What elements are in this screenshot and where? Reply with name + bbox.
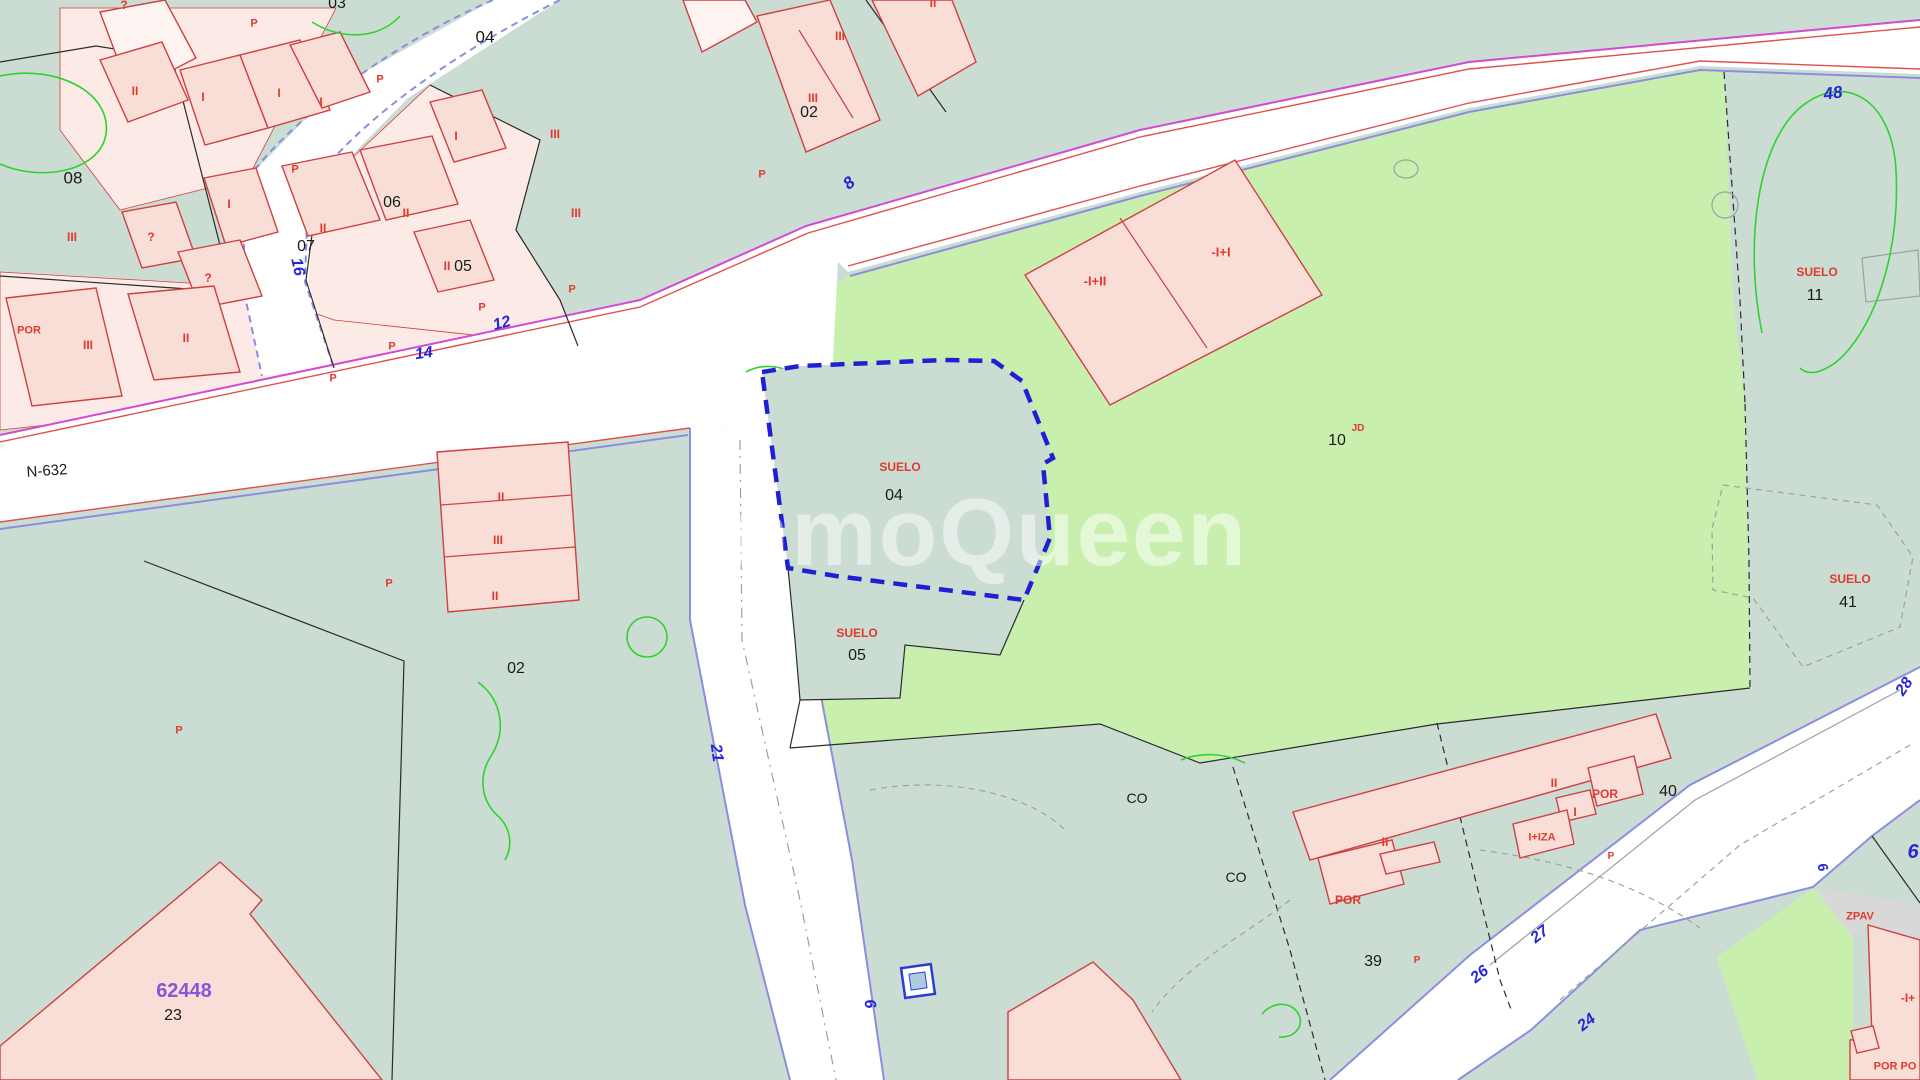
parcel-number-08: 08 <box>64 170 83 187</box>
street-number-6a: 6 <box>860 998 877 1010</box>
floors-i-5: I <box>227 198 230 210</box>
ground-mark-p-3: P <box>291 165 298 176</box>
floors-iii-2: III <box>83 339 93 351</box>
floors-iii-5: III <box>835 30 845 42</box>
floors-i-iza: I+IZA <box>1528 833 1555 844</box>
parcel-number-39: 39 <box>1364 954 1382 970</box>
floors-ii-8: II <box>492 590 499 602</box>
landuse-zpav: ZPAV <box>1846 912 1874 923</box>
ground-mark-p-9: P <box>385 579 392 590</box>
ground-mark-p-1: P <box>250 19 257 30</box>
ground-mark-p-6: P <box>388 342 395 353</box>
parcel-number-03: 03 <box>328 0 346 12</box>
ground-mark-p-7: P <box>568 285 575 296</box>
floors-ii-3: II <box>320 222 327 234</box>
floors-iii-7: III <box>493 534 503 546</box>
floors-ii-7: II <box>498 491 505 503</box>
floors-i-1: I <box>201 91 204 103</box>
floors-por-4: POR PO <box>1874 1062 1917 1073</box>
ground-mark-p-2: P <box>376 75 383 86</box>
map-labels-layer: 0304080607050202SUELO04SUELO0510JDSUELO1… <box>0 0 1920 1080</box>
suelo-11-label: SUELO <box>1796 266 1837 278</box>
street-number-6c: 6 <box>1907 842 1918 862</box>
floors-ii-9: II <box>1551 777 1558 789</box>
floors-neg-i: -I+ <box>1901 992 1915 1004</box>
parcel-number-04-suelo: 04 <box>885 488 903 504</box>
floors-i-2: I <box>277 87 280 99</box>
floors-iii-4: III <box>571 207 581 219</box>
floors-ii-2: II <box>403 207 410 219</box>
parcel-number-04: 04 <box>476 29 495 46</box>
floors-iii-3: III <box>550 128 560 140</box>
floors-i-6: I <box>1573 806 1576 818</box>
street-number-12: 12 <box>491 314 512 334</box>
cadastral-map-viewer: InmoQueen 0304080607050202SUELO04SUELO05… <box>0 0 1920 1080</box>
mark-q-3: ? <box>204 272 211 284</box>
parcel-number-06: 06 <box>383 195 401 211</box>
street-number-14: 14 <box>414 345 434 363</box>
street-number-28: 28 <box>1893 675 1916 699</box>
ground-mark-p-8: P <box>758 170 765 181</box>
floors-iii-1: III <box>67 231 77 243</box>
floors-ii-6: II <box>930 0 937 9</box>
street-number-26: 26 <box>1468 963 1492 987</box>
floors-por-1: POR <box>17 326 41 337</box>
ground-mark-p-4: P <box>478 303 485 314</box>
street-number-16: 16 <box>287 257 306 278</box>
floors-neg-i-i: -I+I <box>1211 246 1230 259</box>
parcel-number-07: 07 <box>297 239 315 255</box>
landuse-co-2: CO <box>1226 870 1247 884</box>
parcel-number-41: 41 <box>1839 595 1857 611</box>
floors-ii-5: II <box>183 332 190 344</box>
street-number-24: 24 <box>1575 1011 1599 1035</box>
mark-q-2: ? <box>147 231 154 243</box>
ground-mark-p-11: P <box>1608 852 1615 862</box>
ground-mark-p-12: P <box>1414 956 1421 966</box>
parcel-number-11: 11 <box>1807 288 1824 304</box>
floors-ii-10: II <box>1382 836 1389 848</box>
street-number-6b: 6 <box>1815 861 1831 873</box>
floors-por-3: POR <box>1335 894 1361 906</box>
floors-i-4: I <box>454 130 457 142</box>
floors-por-2: POR <box>1592 788 1618 800</box>
suelo-41-label: SUELO <box>1829 573 1870 585</box>
floors-iii-6: III <box>808 92 818 104</box>
suelo-04-label: SUELO <box>879 461 920 473</box>
street-number-48: 48 <box>1822 83 1843 102</box>
mark-q-1: ? <box>120 0 127 11</box>
parcel-number-02: 02 <box>507 661 525 677</box>
street-number-27: 27 <box>1528 923 1552 947</box>
suelo-05-label: SUELO <box>836 627 877 639</box>
street-number-21: 21 <box>707 743 725 763</box>
landuse-co-1: CO <box>1127 791 1148 805</box>
ground-mark-p-10: P <box>175 726 182 737</box>
ground-mark-p-5: P <box>329 374 336 385</box>
street-number-8: 8 <box>840 173 858 192</box>
parcel-number-10: 10 <box>1328 433 1346 449</box>
parcel-number-23: 23 <box>164 1008 182 1024</box>
parcel-number-40: 40 <box>1659 784 1677 800</box>
parcel-number-05-suelo: 05 <box>848 648 866 664</box>
floors-ii-4: II <box>444 260 451 272</box>
road-name-n632: N-632 <box>26 462 68 480</box>
parcel-number-02-top: 02 <box>800 105 818 121</box>
landuse-jd: JD <box>1352 424 1365 434</box>
floors-neg-i-ii: -I+II <box>1084 275 1107 288</box>
floors-i-3: I <box>319 96 322 108</box>
parcel-number-05: 05 <box>454 259 472 275</box>
cadastral-ref-62448: 62448 <box>156 981 212 1001</box>
floors-ii-1: II <box>132 85 139 97</box>
